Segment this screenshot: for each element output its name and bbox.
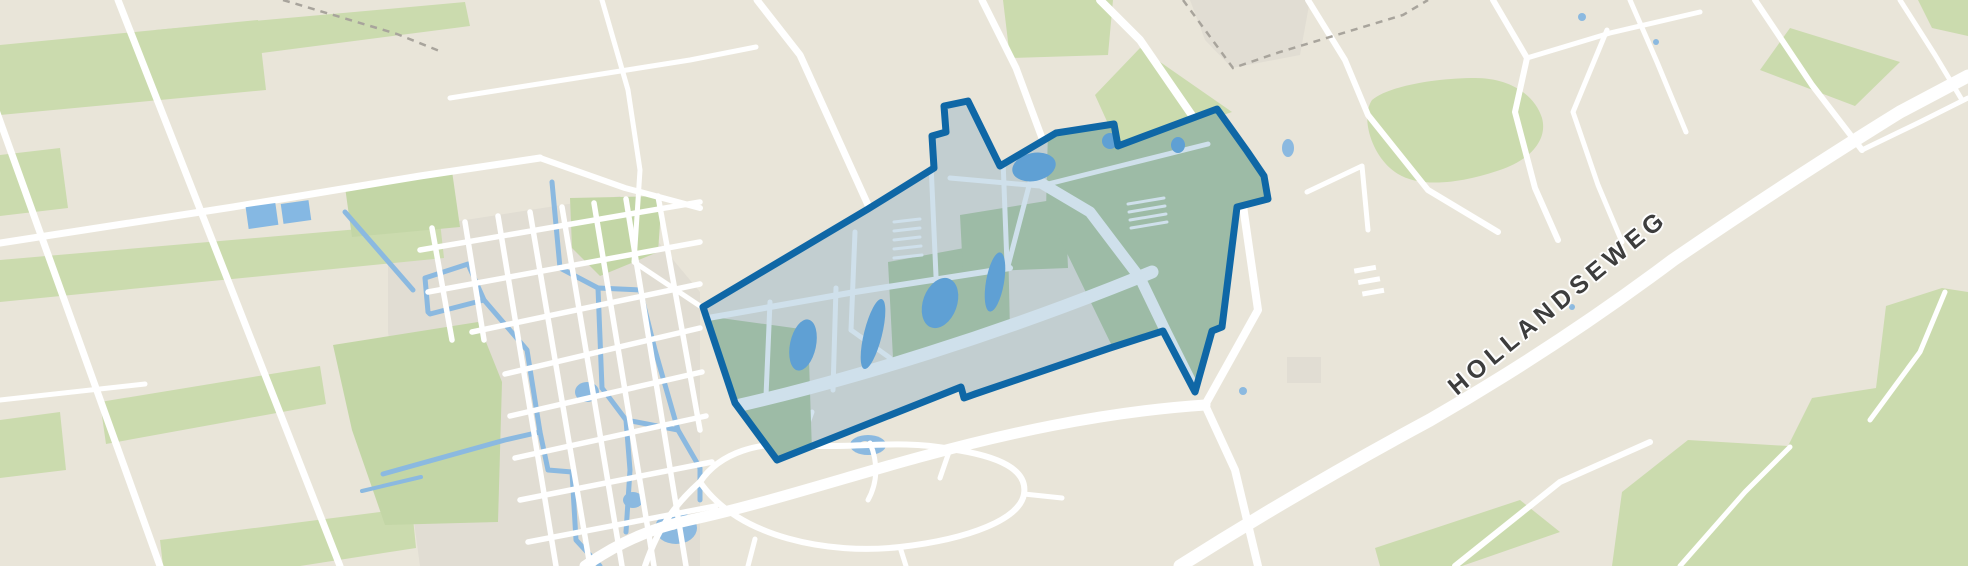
map-canvas[interactable]: HOLLANDSEWEG [0,0,1968,566]
map-svg [0,0,1968,566]
